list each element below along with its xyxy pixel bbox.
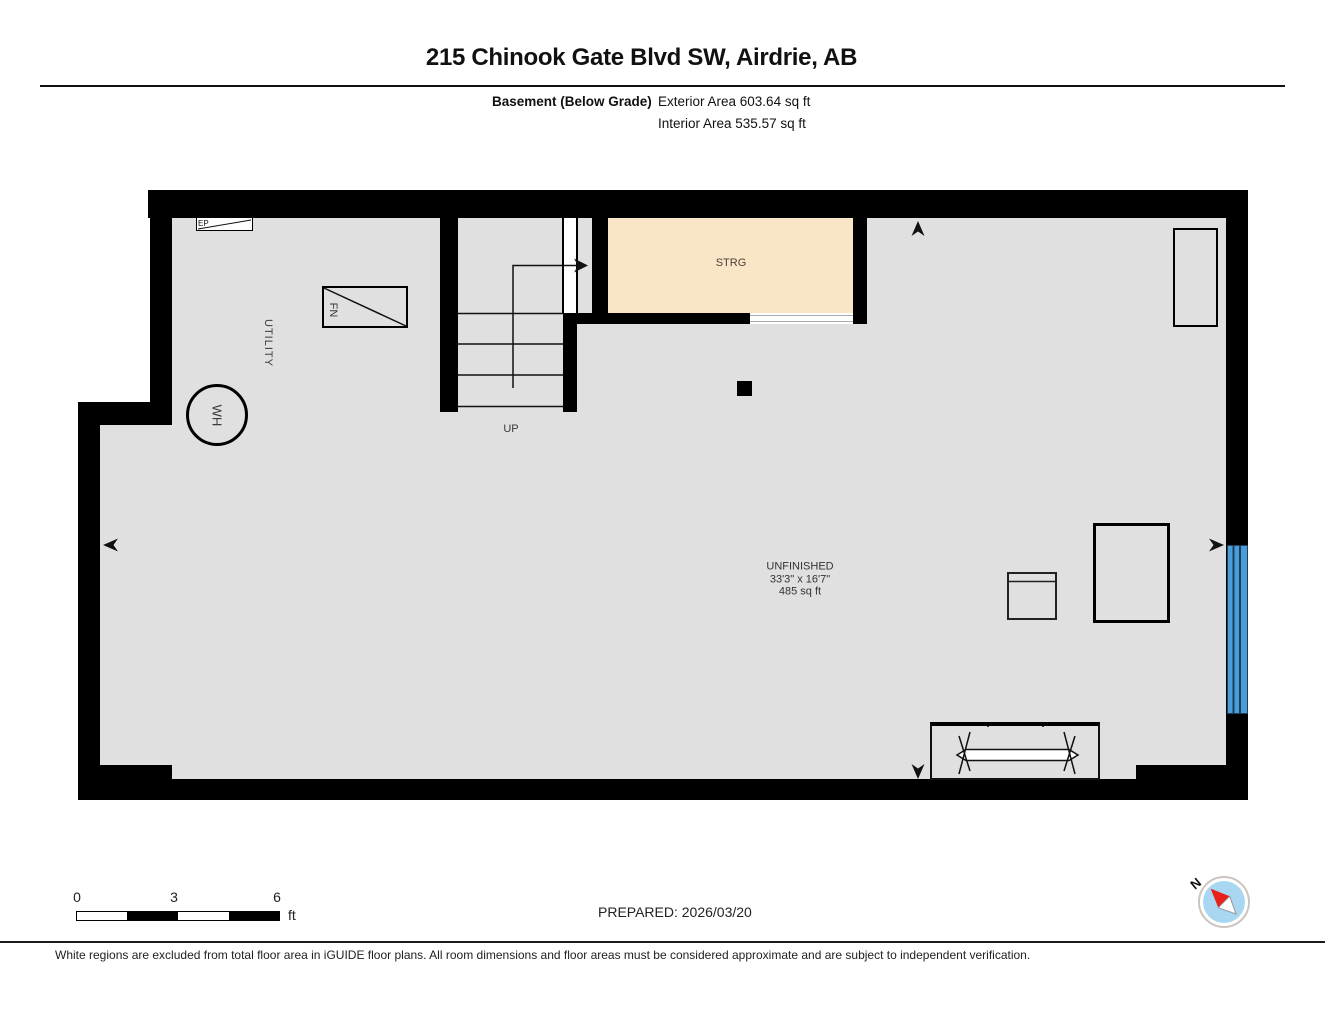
unfinished-room-label: UNFINISHED 33'3" x 16'7" 485 sq ft [766, 560, 833, 598]
electrical-panel: EP [196, 217, 253, 231]
header-divider [40, 85, 1285, 87]
wall-stair-right [563, 313, 577, 412]
disclaimer-text: White regions are excluded from total fl… [55, 948, 1030, 962]
unfinished-name: UNFINISHED [766, 560, 833, 573]
wall-bottom-step-left [100, 765, 172, 779]
compass-needle-south [1218, 896, 1236, 914]
window-right [1227, 545, 1248, 714]
storage-label: STRG [716, 257, 747, 269]
page-title: 215 Chinook Gate Blvd SW, Airdrie, AB [0, 44, 1283, 72]
water-heater-label: WH [209, 404, 224, 426]
table-bottom-right [930, 722, 1100, 780]
scale-bar [76, 911, 280, 921]
scale-unit: ft [288, 907, 296, 923]
utility-label: UTILITY [262, 319, 274, 367]
unfinished-dimensions: 33'3" x 16'7" [766, 573, 833, 586]
storage-door-opening [750, 313, 853, 324]
scale-bar-segment [127, 912, 178, 920]
wall-stair-left [440, 218, 458, 412]
furnace-label: FN [327, 303, 339, 318]
stairs-up-label: UP [503, 423, 518, 435]
box-small [1007, 572, 1057, 620]
wall-storage-right [853, 218, 867, 324]
shelf-top-right [1173, 228, 1218, 327]
scale-tick-0: 0 [70, 889, 84, 905]
scale-bar-segment [229, 912, 280, 920]
interior-area: Interior Area 535.57 sq ft [658, 116, 806, 131]
scale-tick-6: 6 [270, 889, 284, 905]
prepared-date: PREPARED: 2026/03/20 [598, 904, 752, 920]
unfinished-area: 485 sq ft [766, 585, 833, 598]
wall-left-upper [150, 190, 172, 425]
compass-north-label: N [1187, 875, 1204, 893]
floor-plan-page: 215 Chinook Gate Blvd SW, Airdrie, AB Ba… [0, 0, 1325, 1024]
compass-icon [1199, 877, 1249, 927]
stair-upper-flight [562, 218, 578, 313]
wall-storage-left [592, 218, 608, 324]
wall-bottom [78, 779, 1248, 800]
wall-top [148, 190, 1248, 218]
exterior-area: Exterior Area 603.64 sq ft [658, 94, 810, 109]
floor-label: Basement (Below Grade) [492, 94, 652, 109]
box-large [1093, 523, 1170, 623]
support-post [737, 381, 752, 396]
scale-tick-3: 3 [167, 889, 181, 905]
compass-needle-north [1211, 889, 1230, 908]
water-heater-circle: WH [186, 384, 248, 446]
footer-divider [0, 941, 1325, 943]
wall-left-lower [78, 402, 100, 800]
wall-bottom-step-right [1136, 765, 1226, 779]
